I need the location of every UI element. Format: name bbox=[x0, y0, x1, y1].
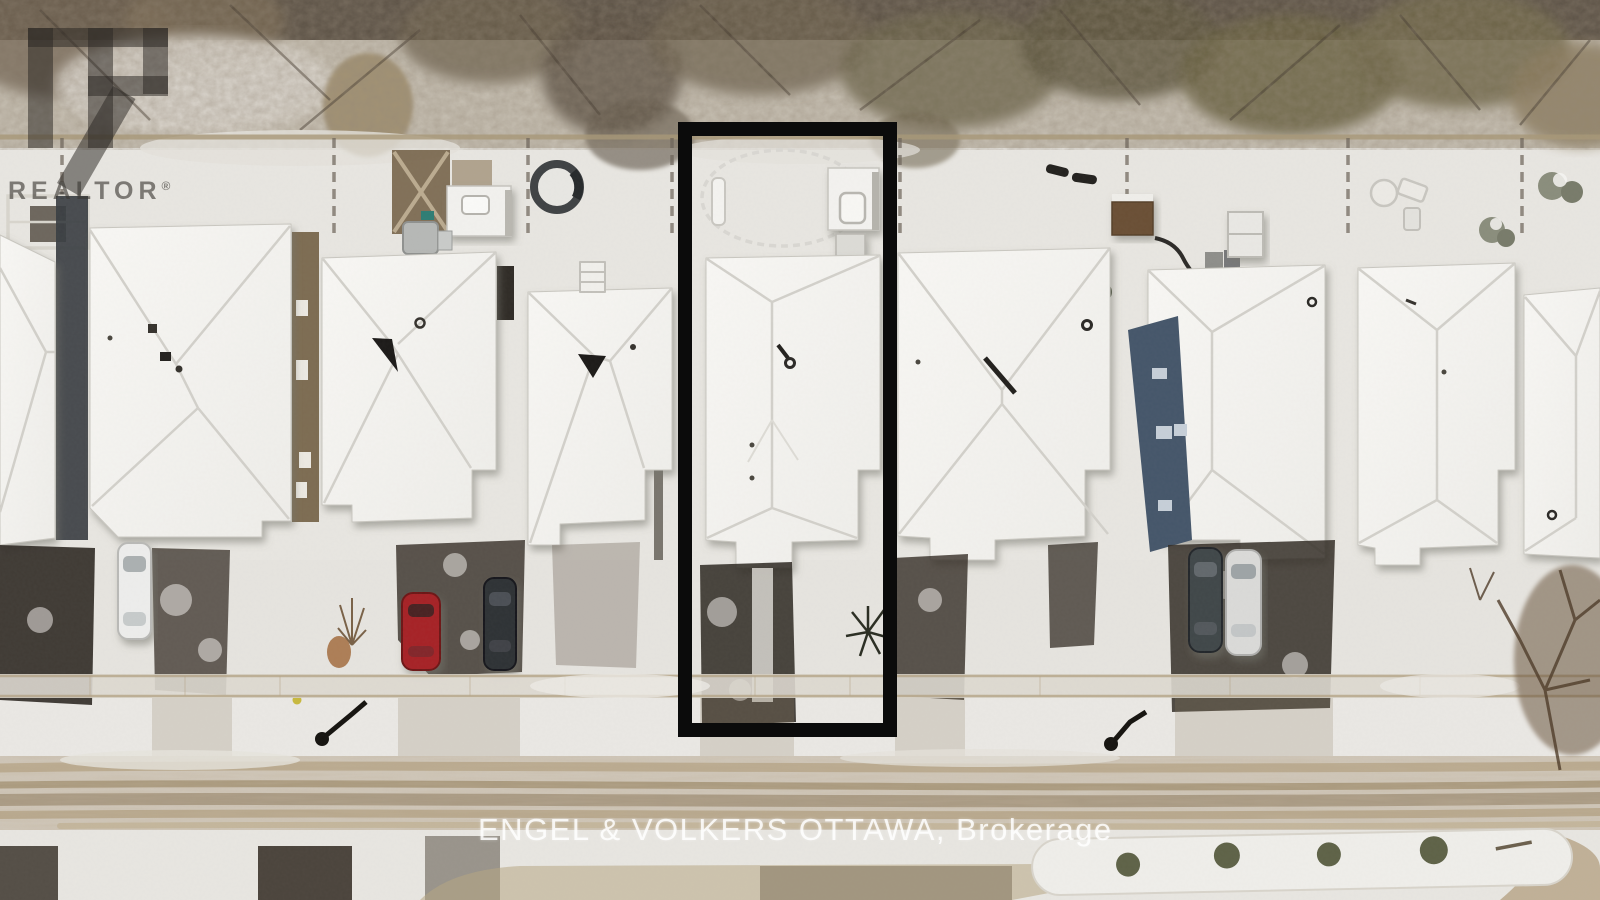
aerial-photo: REALTOR® ENGEL & VOLKERS OTTAWA, Brokera… bbox=[0, 0, 1600, 900]
aerial-scene bbox=[0, 0, 1600, 900]
film-grain bbox=[0, 130, 1600, 900]
